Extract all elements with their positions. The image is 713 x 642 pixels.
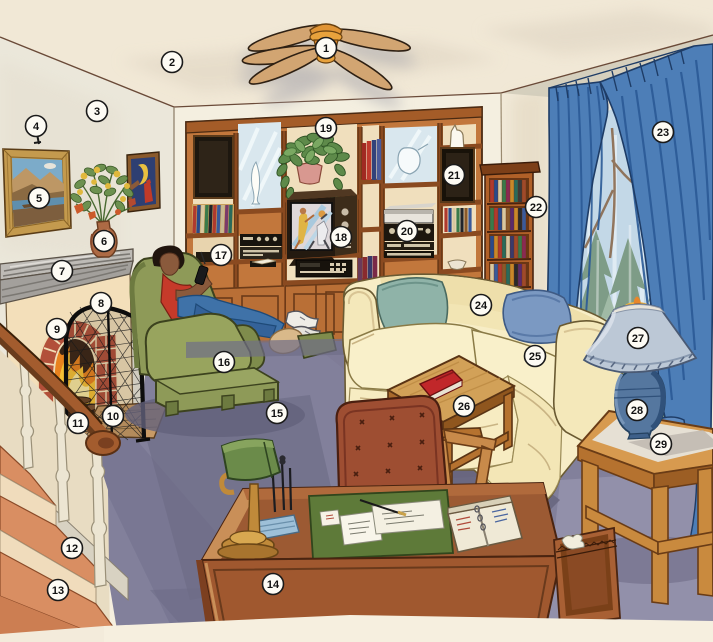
svg-text:27: 27 [632, 333, 644, 345]
svg-text:19: 19 [320, 123, 332, 135]
svg-text:8: 8 [98, 298, 104, 310]
svg-text:2: 2 [169, 57, 175, 69]
svg-text:29: 29 [655, 439, 667, 451]
svg-text:20: 20 [401, 226, 413, 238]
svg-text:4: 4 [33, 121, 40, 133]
svg-text:11: 11 [72, 418, 84, 430]
svg-text:1: 1 [323, 43, 329, 55]
svg-text:16: 16 [218, 357, 230, 369]
svg-text:7: 7 [59, 266, 65, 278]
svg-text:10: 10 [107, 411, 119, 423]
svg-text:15: 15 [271, 408, 283, 420]
svg-text:22: 22 [530, 202, 542, 214]
svg-text:28: 28 [631, 405, 643, 417]
svg-text:25: 25 [529, 351, 541, 363]
svg-text:3: 3 [94, 106, 100, 118]
svg-text:24: 24 [475, 300, 488, 312]
svg-text:12: 12 [66, 543, 78, 555]
svg-text:17: 17 [215, 250, 227, 262]
svg-text:6: 6 [101, 236, 107, 248]
svg-text:21: 21 [448, 170, 460, 182]
svg-text:26: 26 [458, 401, 470, 413]
svg-text:18: 18 [335, 232, 347, 244]
svg-text:9: 9 [54, 324, 60, 336]
svg-text:13: 13 [52, 585, 64, 597]
svg-text:14: 14 [267, 579, 280, 591]
svg-text:23: 23 [657, 127, 669, 139]
svg-text:5: 5 [36, 193, 42, 205]
